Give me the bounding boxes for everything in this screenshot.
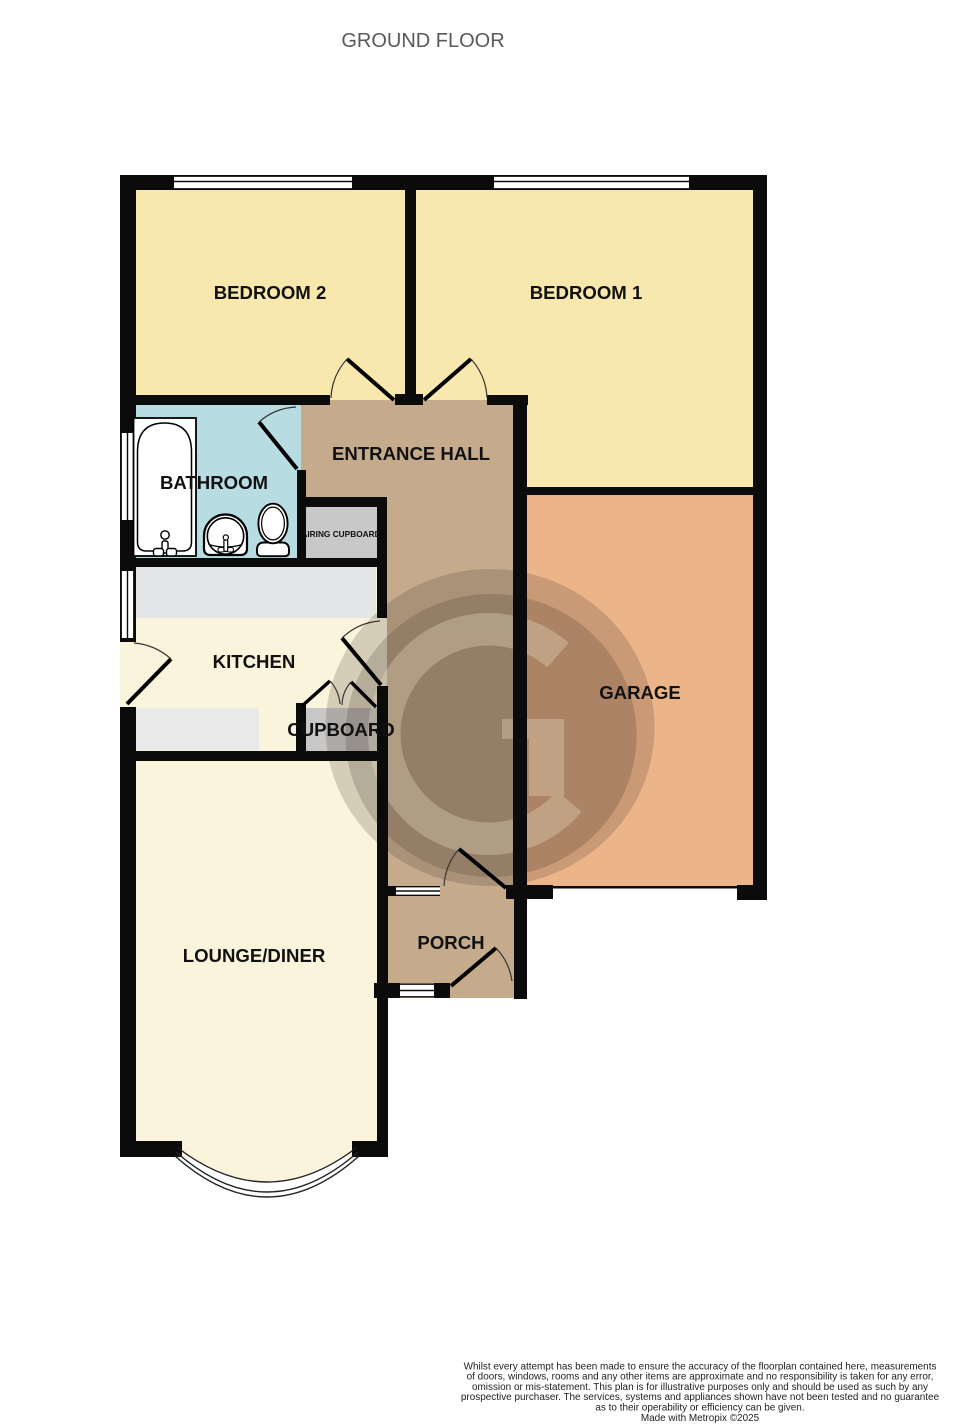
svg-text:BEDROOM 2: BEDROOM 2 [214,282,327,303]
svg-text:KITCHEN: KITCHEN [213,651,296,672]
svg-text:GROUND FLOOR: GROUND FLOOR [341,30,504,52]
svg-text:ENTRANCE HALL: ENTRANCE HALL [332,443,490,464]
svg-text:GARAGE: GARAGE [599,682,681,703]
svg-text:Made with Metropix ©2025: Made with Metropix ©2025 [641,1413,760,1424]
svg-text:BEDROOM 1: BEDROOM 1 [530,282,643,303]
svg-text:BATHROOM: BATHROOM [160,472,268,493]
svg-text:AIRING CUPBOARD: AIRING CUPBOARD [301,529,380,539]
svg-text:CUPBOARD: CUPBOARD [287,719,394,740]
svg-text:LOUNGE/DINER: LOUNGE/DINER [183,945,326,966]
svg-text:PORCH: PORCH [417,932,484,953]
